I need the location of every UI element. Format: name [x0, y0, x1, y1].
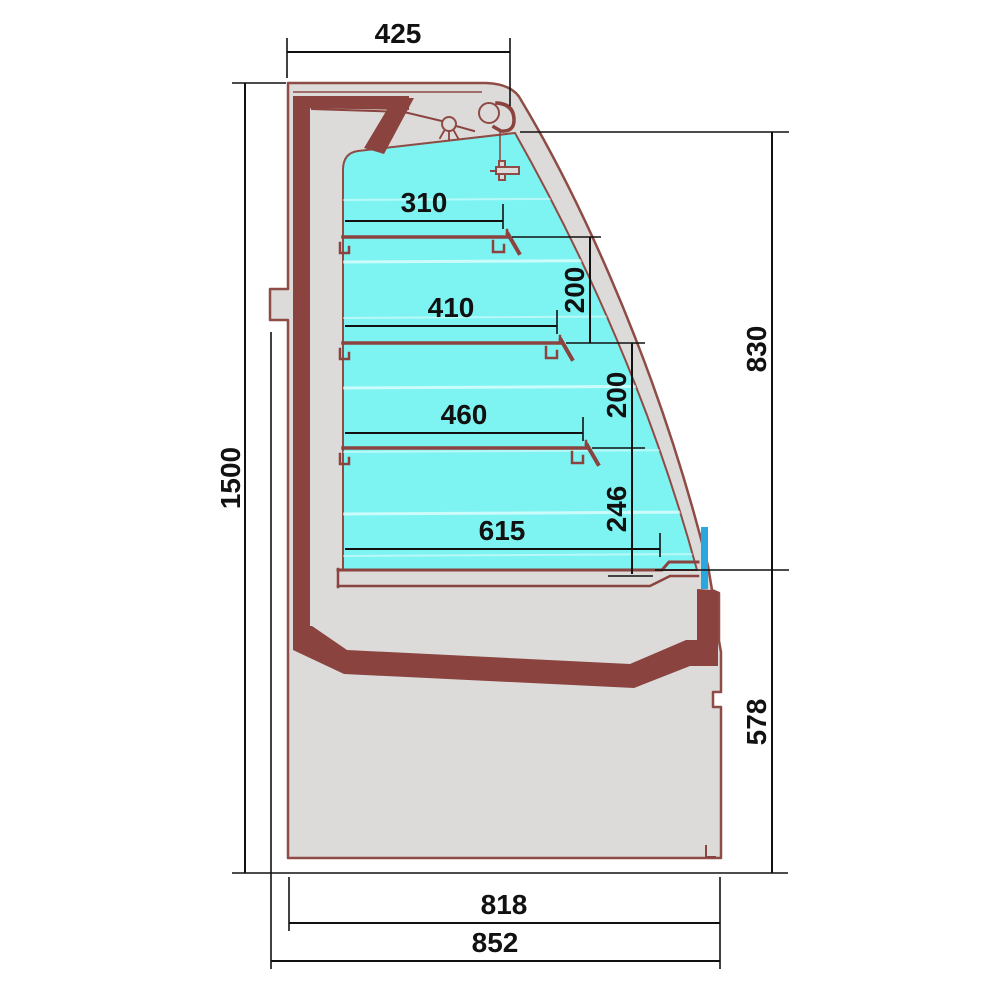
- dim-label: 1500: [215, 447, 246, 509]
- dim-label: 818: [481, 889, 528, 920]
- dim-label: 578: [741, 699, 772, 746]
- dim-label: 830: [741, 326, 772, 373]
- dim-label: 410: [428, 292, 475, 323]
- dim-label: 200: [601, 372, 632, 419]
- cabinet-cross-section-drawing: 425 1500 310 410 460: [0, 0, 1000, 1000]
- blind-roller-icon: [479, 103, 499, 123]
- drawing-canvas: 425 1500 310 410 460: [0, 0, 1000, 1000]
- glass-seal: [701, 527, 708, 589]
- lamp-icon: [442, 117, 456, 131]
- dim-label: 310: [401, 187, 448, 218]
- dim-label: 425: [375, 18, 422, 49]
- dim-label: 200: [559, 267, 590, 314]
- dim-label: 460: [441, 399, 488, 430]
- dim-base-height: 578: [741, 570, 772, 873]
- cabinet-body: [270, 83, 721, 858]
- left-wall-insulation: [293, 96, 310, 628]
- dim-overall-height: 1500: [215, 83, 286, 873]
- dim-label: 852: [472, 927, 519, 958]
- dim-label: 615: [479, 515, 526, 546]
- front-right-insulation-block: [697, 589, 718, 664]
- dim-label: 246: [601, 486, 632, 533]
